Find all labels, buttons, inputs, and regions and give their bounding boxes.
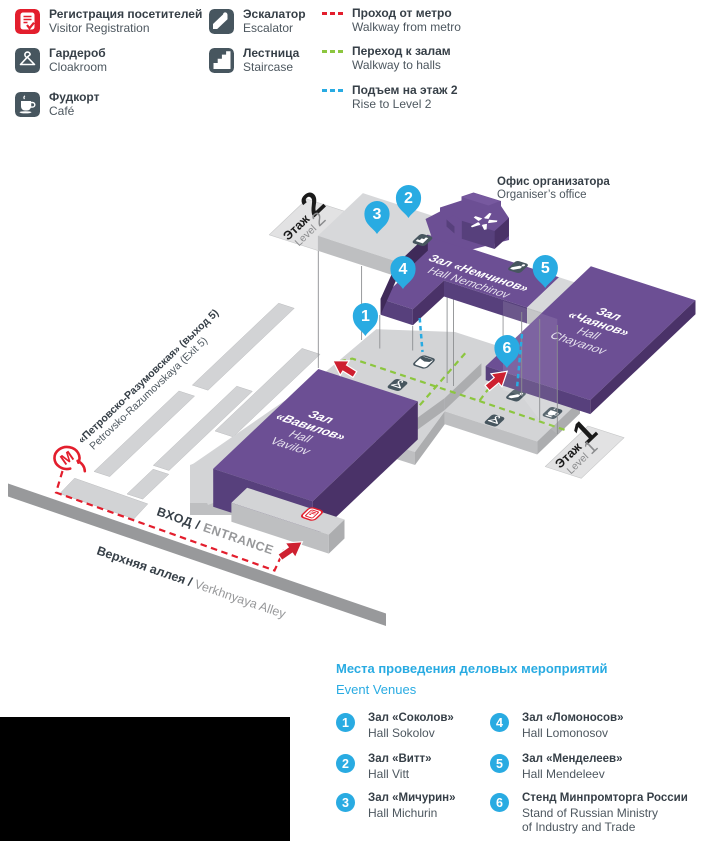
svg-text:1: 1: [361, 308, 370, 325]
svg-text:2: 2: [342, 757, 349, 771]
svg-text:1: 1: [342, 716, 349, 730]
svg-text:Organiser’s office: Organiser’s office: [497, 189, 587, 201]
svg-text:3: 3: [342, 796, 349, 810]
svg-text:5: 5: [496, 757, 503, 771]
svg-text:4: 4: [496, 716, 503, 730]
svg-text:4: 4: [399, 261, 408, 278]
svg-text:3: 3: [373, 206, 382, 223]
svg-text:6: 6: [496, 796, 503, 810]
svg-text:5: 5: [541, 260, 550, 277]
svg-text:6: 6: [503, 340, 512, 357]
svg-text:Офис организатора: Офис организатора: [497, 176, 610, 188]
svg-text:2: 2: [404, 190, 413, 207]
